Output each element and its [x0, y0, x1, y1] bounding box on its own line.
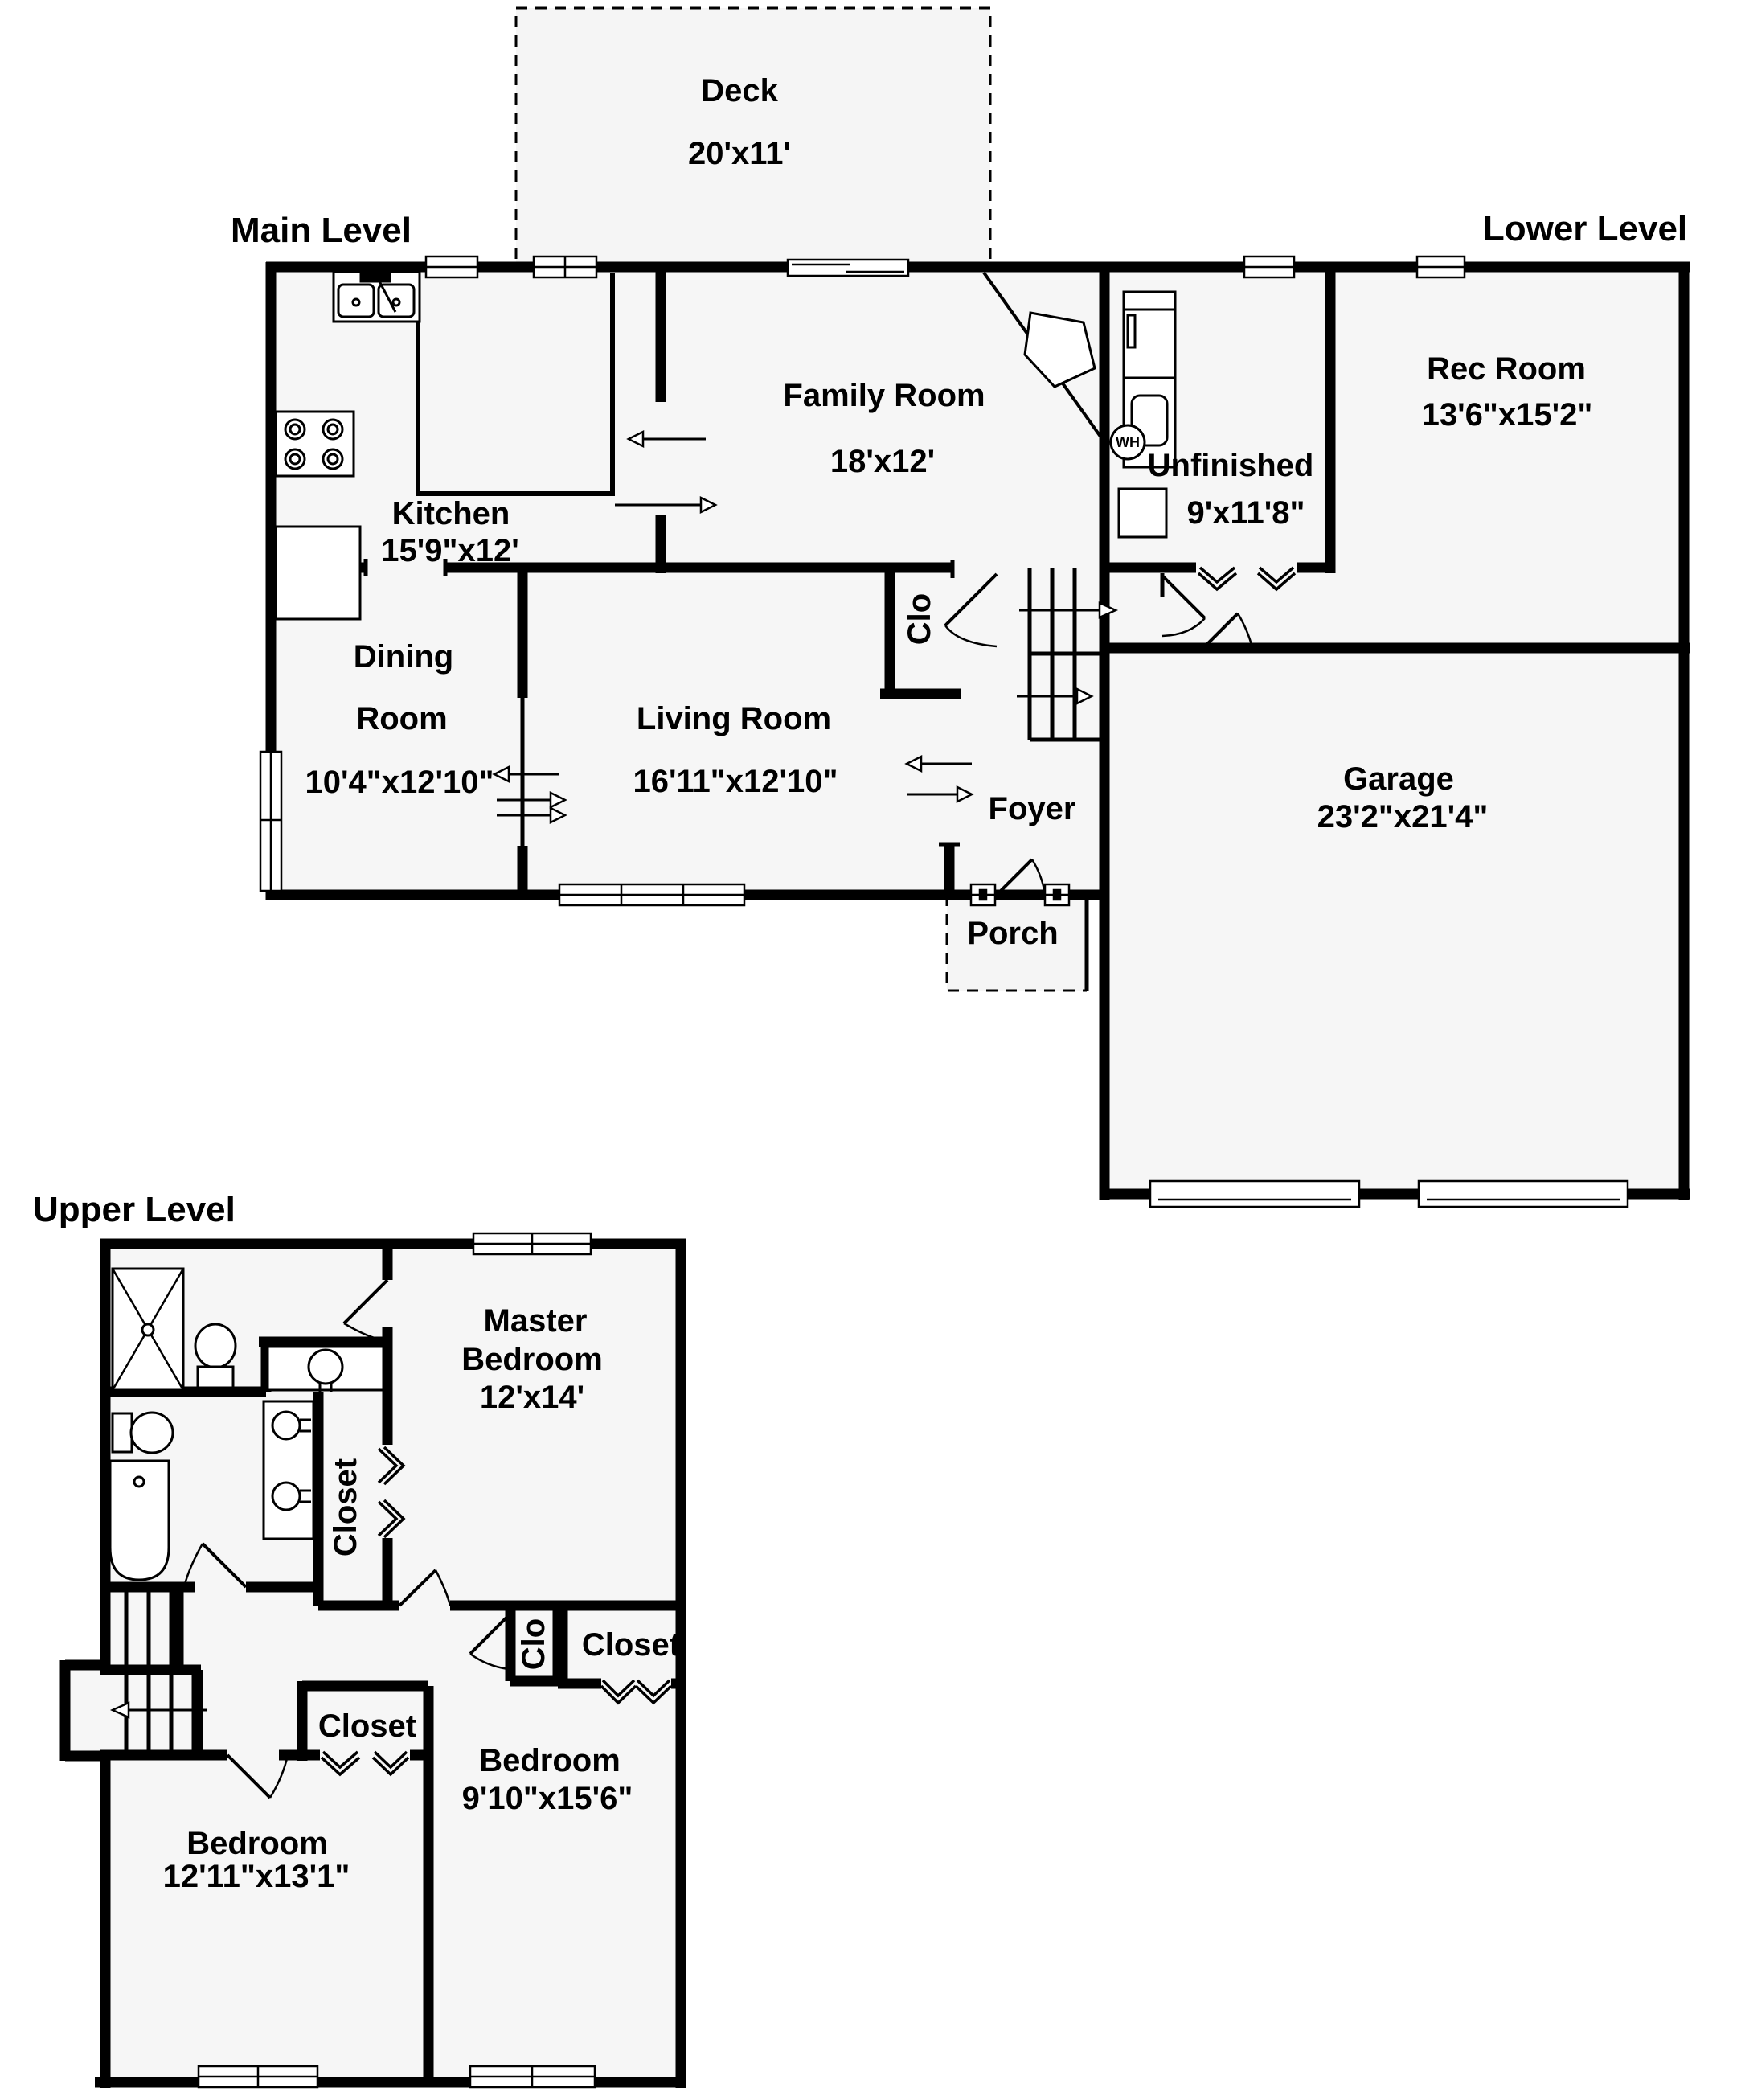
- shower-icon: [113, 1269, 183, 1390]
- refrigerator-icon: [276, 527, 360, 619]
- rec-room-window-icon: [1417, 256, 1465, 277]
- kitchen-double-window-icon: [534, 256, 596, 277]
- bedroom3-dims: 12'11"x13'1": [163, 1859, 350, 1894]
- toilet2-icon: [113, 1413, 173, 1453]
- bedroom3-label: Bedroom: [186, 1826, 328, 1861]
- master-bedroom-label1: Master: [484, 1303, 588, 1339]
- upper-clo-label: Clo: [516, 1618, 551, 1670]
- dining-window-icon: [260, 752, 281, 891]
- unfinished-window-icon: [1244, 256, 1294, 277]
- unfinished-dims: 9'x11'8": [1186, 495, 1305, 531]
- upper-level-title: Upper Level: [33, 1190, 236, 1229]
- master-sink-icon: [268, 1347, 383, 1392]
- kitchen-label: Kitchen: [392, 496, 510, 531]
- living-triple-window-icon: [559, 884, 744, 905]
- deck-slider-icon: [788, 260, 908, 276]
- garage-door1-icon: [1150, 1181, 1359, 1207]
- dining-room-label2: Room: [356, 701, 447, 736]
- stair-bump-region: [65, 1665, 110, 1756]
- main-level-title: Main Level: [231, 211, 412, 250]
- deck-dims: 20'x11': [688, 136, 791, 171]
- bedroom2-dims: 9'10"x15'6": [462, 1781, 633, 1816]
- dining-room-label1: Dining: [354, 639, 453, 675]
- bedroom2-label: Bedroom: [479, 1743, 621, 1778]
- unfinished-label: Unfinished: [1148, 448, 1314, 483]
- floorplan-drawing: Main Level Lower Level Upper Level Deck …: [0, 0, 1737, 2100]
- master-closet-label: Closet: [328, 1458, 363, 1557]
- master-bedroom-label2: Bedroom: [461, 1342, 603, 1377]
- toilet1-icon: [195, 1324, 236, 1388]
- deck-label: Deck: [701, 73, 778, 109]
- master-bedroom-dims: 12'x14': [480, 1380, 584, 1415]
- porch-label: Porch: [967, 916, 1058, 951]
- rec-room-dims: 13'6"x15'2": [1422, 397, 1593, 433]
- room-fills: [65, 8, 1690, 2082]
- stove-icon: [276, 412, 354, 476]
- living-room-dims: 16'11"x12'10": [633, 764, 838, 799]
- garage-door2-icon: [1419, 1181, 1628, 1207]
- floorplan-page: Main Level Lower Level Upper Level Deck …: [0, 0, 1737, 2100]
- foyer-label: Foyer: [989, 791, 1076, 826]
- living-room-label: Living Room: [637, 701, 831, 736]
- garage-label: Garage: [1343, 761, 1454, 797]
- double-vanity-icon: [264, 1401, 313, 1539]
- bedroom3-window-icon: [199, 2066, 317, 2087]
- kitchen-sink-icon: [334, 272, 420, 322]
- rec-room-label: Rec Room: [1427, 351, 1586, 387]
- kitchen-window-icon: [426, 256, 477, 277]
- family-room-dims: 18'x12': [830, 444, 935, 479]
- lower-level-title: Lower Level: [1483, 209, 1687, 248]
- dining-room-dims: 10'4"x12'10": [305, 765, 494, 800]
- main-closet-label: Clo: [902, 593, 937, 645]
- bedroom3-closet-label: Closet: [318, 1708, 416, 1744]
- water-heater-label: WH: [1116, 434, 1140, 450]
- bedroom2-window-icon: [470, 2066, 595, 2087]
- bathtub-icon: [110, 1461, 169, 1580]
- master-window-icon: [473, 1233, 591, 1254]
- furnace-icon: [1119, 489, 1166, 537]
- family-room-label: Family Room: [783, 378, 985, 413]
- bedroom2-closet-label: Closet: [582, 1627, 680, 1663]
- garage-dims: 23'2"x21'4": [1317, 799, 1489, 835]
- kitchen-dims: 15'9"x12': [381, 533, 518, 568]
